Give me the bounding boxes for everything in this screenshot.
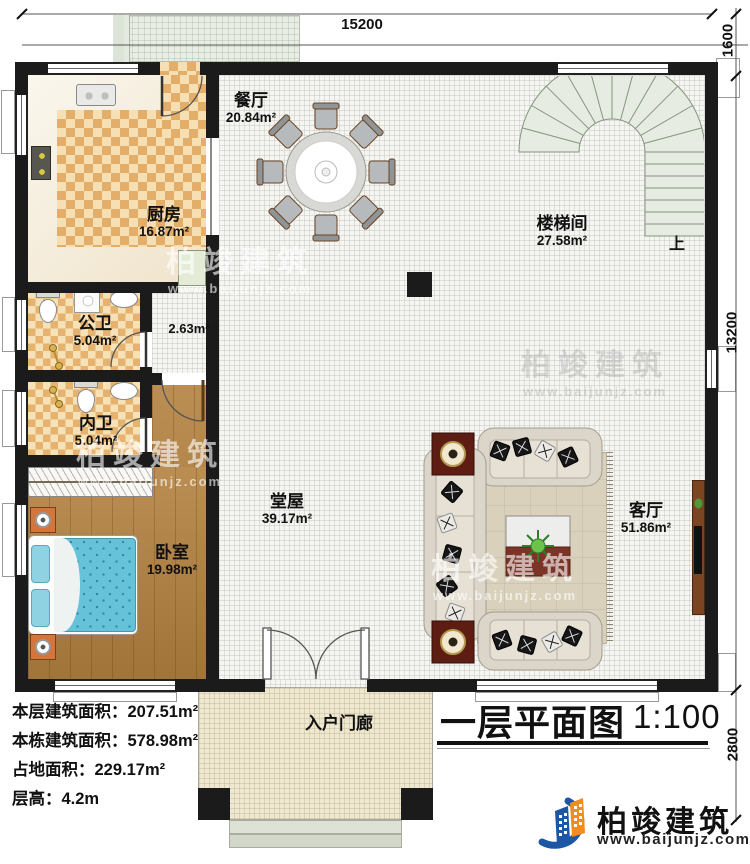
tv-screen <box>694 526 702 574</box>
wall-corridor-jamb <box>152 373 162 385</box>
room-area: 19.98m² <box>127 562 217 577</box>
room-area: 16.87m² <box>119 224 209 239</box>
info-value: 4.2m <box>62 790 100 808</box>
window-sill <box>2 297 15 352</box>
bathroom-sink <box>110 382 138 400</box>
info-line: 层高：4.2m <box>12 785 198 814</box>
wall-segment <box>15 155 28 300</box>
info-label: 本层建筑面积： <box>12 703 128 721</box>
wall-bath-right <box>140 367 152 418</box>
room-name: 卧室 <box>127 543 217 562</box>
info-line: 本栋建筑面积：578.98m² <box>12 727 198 756</box>
info-label: 占地面积： <box>12 761 95 779</box>
window <box>55 679 175 692</box>
room-name: 厨房 <box>119 205 209 224</box>
window <box>477 679 657 692</box>
room-label-bedroom: 卧室 19.98m² <box>127 543 217 577</box>
window <box>15 505 28 575</box>
bed-pillow <box>31 589 50 627</box>
info-label: 层高： <box>12 790 62 808</box>
room-name: 堂屋 <box>242 492 332 511</box>
stairs-up-label: 上 <box>662 236 692 254</box>
window <box>705 350 718 388</box>
wall-segment <box>138 62 160 75</box>
room-name: 内卫 <box>51 414 141 433</box>
wall-segment <box>200 62 558 75</box>
room-label-stairwell: 楼梯间 27.58m² <box>517 214 607 248</box>
room-name: 公卫 <box>50 314 140 333</box>
title-underline-thin <box>437 748 710 749</box>
room-label-porch: 入户门廊 <box>294 714 384 733</box>
wall-kitchen-bottom <box>15 282 178 293</box>
nightstand-lamp <box>35 512 51 528</box>
porch-step <box>229 820 402 834</box>
drawing-scale: 1:100 <box>633 698 721 736</box>
window <box>48 62 138 75</box>
kitchen-stove <box>31 146 51 180</box>
room-label-public-bath: 公卫 5.04m² <box>50 314 140 348</box>
corridor-area-label: 2.63m² <box>152 322 226 337</box>
porch-floor <box>198 687 433 820</box>
rug-fringe <box>607 452 613 644</box>
room-label-inner-bath: 内卫 5.04m² <box>51 414 141 448</box>
wall-segment <box>367 679 477 692</box>
kitchen-corridor-passage <box>178 287 206 293</box>
room-area: 20.84m² <box>206 110 296 125</box>
porch-column <box>198 788 230 820</box>
window <box>558 62 668 75</box>
wall-segment <box>15 679 55 692</box>
window-sill <box>718 653 736 692</box>
kitchen-entry-tile <box>162 75 206 138</box>
room-label-dining: 餐厅 20.84m² <box>206 91 296 125</box>
room-name: 客厅 <box>601 501 691 520</box>
brand-logo-icon <box>528 792 594 856</box>
dimension-right-side: 13200 <box>724 305 741 361</box>
window <box>15 300 28 350</box>
room-area: 5.04m² <box>51 433 141 448</box>
brand-url: www.baijunjz.com <box>597 831 750 848</box>
floor-plan-page: 餐厅 20.84m² 厨房 16.87m² 楼梯间 27.58m² 上 公卫 5… <box>0 0 750 864</box>
window <box>15 95 28 155</box>
logo-building-orange <box>570 798 585 837</box>
structural-column <box>407 272 432 297</box>
porch-step <box>229 834 402 848</box>
info-line: 占地面积：229.17m² <box>12 756 198 785</box>
logo-building-blue <box>555 806 570 845</box>
refrigerator <box>178 250 206 286</box>
room-area: 27.58m² <box>517 233 607 248</box>
room-area: 39.17m² <box>242 511 332 526</box>
room-area: 5.04m² <box>50 333 140 348</box>
room-area: 51.86m² <box>601 520 691 535</box>
wall-bath-divider <box>15 370 152 382</box>
living-room-rug <box>477 452 607 644</box>
room-label-kitchen: 厨房 16.87m² <box>119 205 209 239</box>
porch-column <box>401 788 433 820</box>
info-line: 本层建筑面积：207.51m² <box>12 698 198 727</box>
rear-exterior-landing <box>113 15 300 62</box>
wall-segment <box>15 62 28 95</box>
drawing-title: 一层平面图 <box>440 694 625 746</box>
bed-pillow <box>31 545 50 583</box>
wall-segment <box>15 575 28 692</box>
kitchen-back-door-threshold <box>160 62 200 75</box>
info-value: 578.98m² <box>128 732 199 750</box>
room-name: 楼梯间 <box>517 214 607 233</box>
kitchen-sink <box>76 84 116 106</box>
wall-segment <box>705 388 718 692</box>
room-label-living: 客厅 51.86m² <box>601 501 691 535</box>
window-sill <box>2 390 15 447</box>
room-label-hall: 堂屋 39.17m² <box>242 492 332 526</box>
wall-segment <box>175 679 265 692</box>
dimension-top: 15200 <box>332 16 392 33</box>
wall-center-vertical <box>206 235 219 692</box>
wall-bath-right <box>140 293 152 332</box>
cabinet-plant <box>694 498 703 509</box>
title-underline <box>437 741 708 745</box>
wall-segment <box>705 62 718 350</box>
window-sill <box>2 503 15 577</box>
dimension-right-top: 1600 <box>720 19 737 63</box>
nightstand-lamp <box>35 639 51 655</box>
window-sill <box>716 58 740 98</box>
window <box>15 392 28 445</box>
dimension-right-bottom: 2800 <box>725 723 742 767</box>
wardrobe-rod <box>28 481 153 483</box>
info-value: 207.51m² <box>128 703 199 721</box>
info-label: 本栋建筑面积： <box>12 732 128 750</box>
room-name: 餐厅 <box>206 91 296 110</box>
rear-landing-steps <box>113 15 130 62</box>
info-value: 229.17m² <box>95 761 166 779</box>
wall-segment <box>15 445 28 505</box>
kitchen-cased-opening <box>210 138 212 235</box>
hall-living-dining-floor <box>219 75 705 679</box>
wall-bedroom-top <box>15 455 160 467</box>
area-info-panel: 本层建筑面积：207.51m² 本栋建筑面积：578.98m² 占地面积：229… <box>12 698 198 814</box>
window-sill <box>1 90 15 154</box>
